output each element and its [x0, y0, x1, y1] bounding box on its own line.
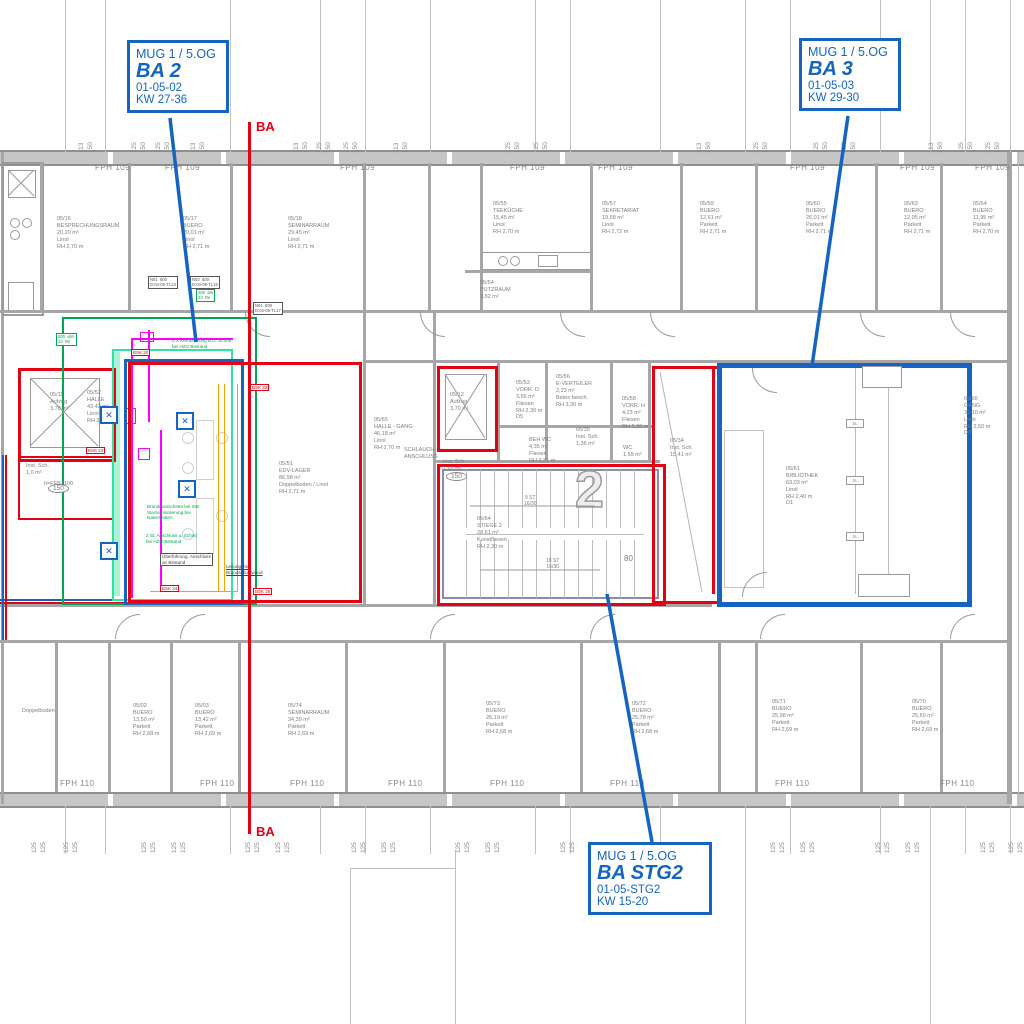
dim-number: 150 — [402, 142, 409, 153]
hob-symbol — [510, 256, 520, 266]
grid-line — [230, 0, 231, 152]
callout-ba3[interactable]: MUG 1 / 5.OG BA 3 01-05-03 KW 29-30 — [799, 38, 901, 111]
dim-number: 150 — [140, 142, 147, 153]
facade-label-top: FPH 109 — [975, 163, 1010, 172]
door-arc — [860, 312, 885, 337]
door-arc — [560, 312, 585, 337]
bsk-label: BSK 20 — [131, 349, 150, 356]
dim-number: 113 — [696, 143, 703, 153]
dim-number: 125 — [343, 142, 350, 153]
zone-stg2-red-outline — [437, 464, 666, 606]
room-label: 05/12 Aufzug 3,70 m² — [450, 392, 469, 413]
room-label: Inst. Sch. 1,0 m² — [26, 463, 49, 477]
door-arc — [430, 614, 455, 639]
grid-line — [745, 0, 746, 152]
wall — [718, 640, 721, 792]
room-label: 05/61 BIBLIOTHEK 63,03 m² Linol RH 2,40 … — [786, 466, 818, 507]
room-label: 05/18 SEMINARRAUM 29,45 m² Linol RH 2,71… — [288, 216, 329, 250]
dim-number: 150 — [164, 142, 171, 153]
door-arc — [950, 312, 975, 337]
note-green: Brandmanschette bei SW Steckenisolierung… — [147, 504, 199, 521]
room-label: BEH WC 4,35 m² Fliesen RH 2,31 m — [529, 437, 555, 465]
room-label: 05/63 BUERO 12,05 m² Parkett RH 2,71 m — [904, 201, 930, 235]
dim-number: 125 — [569, 842, 576, 853]
wall — [443, 640, 446, 792]
wall — [940, 163, 943, 312]
room-label: 05/02 BUERO 13,50 m² Parkett RH 2,68 m — [133, 703, 159, 737]
dim-number: 125 — [884, 842, 891, 853]
dim-number: 150 — [822, 142, 829, 153]
bsk-label: BSK 23 — [86, 447, 105, 454]
grid-line — [105, 806, 106, 854]
facade-label-bottom: FPH 110 — [200, 779, 234, 788]
left-edge-line-blue — [2, 455, 4, 640]
grid-line — [790, 806, 791, 854]
building-line — [930, 806, 931, 1024]
wall — [875, 163, 878, 312]
dim-number: 125 — [275, 842, 282, 853]
callout-ba2-code: 01-05-02 — [136, 82, 220, 94]
dim-number: 125 — [141, 842, 148, 853]
dim-number: 150 — [542, 142, 549, 153]
dim-number: 125 — [914, 842, 921, 853]
door-arc — [420, 312, 445, 337]
damper-icon: ✕ — [100, 406, 118, 424]
facade-label-top: FPH 109 — [95, 163, 130, 172]
dim-number: 150 — [87, 142, 94, 153]
building-line — [745, 806, 746, 1024]
damper-icon: ✕ — [100, 542, 118, 560]
room-label: 05/53 VORR. D 3,56 m² Fliesen RH 2,30 m … — [516, 380, 542, 421]
callout-ba3-project: MUG 1 / 5.OG — [808, 45, 892, 59]
dim-number: 125 — [813, 142, 820, 153]
dim-number: 125 — [809, 842, 816, 853]
wall — [580, 640, 583, 792]
callout-stg2-project: MUG 1 / 5.OG — [597, 849, 703, 863]
wall — [755, 163, 758, 312]
mini-table: 200 ø/m 23 Re — [56, 333, 77, 346]
facade-label-top: FPH 109 — [165, 163, 200, 172]
facade-label-bottom: FPH 110 — [940, 779, 974, 788]
fan-icon: ✕ — [178, 480, 196, 498]
dim-number: 125 — [31, 842, 38, 853]
dim-number: 125 — [779, 842, 786, 853]
dim-number: 113 — [293, 143, 300, 153]
room-label: 05/60 BUERO 26,01 m² Parkett RH 2,71 m — [806, 201, 832, 235]
wall — [40, 163, 43, 312]
building-line — [350, 868, 455, 869]
dim-number: 125 — [40, 842, 47, 853]
wall — [648, 362, 651, 460]
room-label: Doppelboden — [22, 708, 55, 715]
room-label: 05/03 BUERO 13,42 m² Parkett RH 2,69 m — [195, 703, 221, 737]
room-label: 05/56 E-VERTEILER 2,23 m² Beton besch. R… — [556, 374, 592, 408]
door-arc — [950, 614, 975, 639]
sink-symbol — [8, 282, 34, 312]
bsk-label: BSK 24 — [160, 585, 179, 592]
wall — [680, 163, 683, 312]
grid-line — [320, 806, 321, 854]
hob-symbol — [22, 218, 32, 228]
dim-number: 150 — [514, 142, 521, 153]
section-marker-top: BA — [256, 119, 275, 134]
wall — [428, 163, 431, 312]
facade-label-bottom: FPH 110 — [290, 779, 324, 788]
note-black: Überführung, Anschluss an Bestand — [160, 553, 213, 566]
room-label: 05/71 BUERO 25,98 m² Parkett RH 2,69 m — [772, 699, 798, 733]
grid-line — [65, 0, 66, 152]
dim-number: 125 — [390, 842, 397, 853]
dim-number: 150 — [325, 142, 332, 153]
fan-icon: ✕ — [176, 412, 194, 430]
facade-label-top: FPH 109 — [790, 163, 825, 172]
wall — [128, 163, 131, 312]
dim-number: 113 — [928, 143, 935, 153]
facade-label-top: FPH 109 — [598, 163, 633, 172]
grid-line — [1010, 0, 1011, 152]
wall — [610, 362, 613, 460]
grid-line — [320, 0, 321, 152]
dim-number: 125 — [841, 142, 848, 153]
dim-number: 125 — [905, 842, 912, 853]
room-label: 05/58 VORR. H 4,23 m² Fliesen RH 2,30 m — [622, 396, 648, 430]
callout-stg2-kw: KW 15-20 — [597, 896, 703, 908]
hob-symbol — [10, 218, 20, 228]
grid-line — [660, 0, 661, 152]
dim-number: 125 — [958, 142, 965, 153]
callout-ba2-kw: KW 27-36 — [136, 94, 220, 106]
dim-number: 125 — [72, 842, 79, 853]
dim-number: 125 — [485, 842, 492, 853]
room-label: Inst. Sch. 1,65 m² — [443, 459, 466, 473]
room-label: 05/57 SEKRETARIAT 19,58 m² Linol RH 2,72… — [602, 201, 639, 235]
callout-stg2[interactable]: MUG 1 / 5.OG BA STG2 01-05-STG2 KW 15-20 — [588, 842, 712, 915]
mini-table: 200 ø/s 23 Re — [196, 289, 215, 302]
dim-number: 125 — [180, 842, 187, 853]
room-label: 05/72 BUERO 25,78 m² Parkett RH 2,68 m — [632, 701, 658, 735]
room-label: 05/35 Inst. Sch. 1,36 m² — [576, 427, 599, 448]
dim-number: 113 — [78, 143, 85, 153]
outer-wall-right-2 — [1018, 152, 1019, 804]
dim-number: 125 — [533, 142, 540, 153]
wall — [465, 270, 590, 273]
dim-number: 125 — [1008, 842, 1015, 853]
dim-number: 150 — [302, 142, 309, 153]
note-black: Leitung vor Brandschutzwand — [226, 564, 263, 575]
facade-label-bottom: FPH 110 — [775, 779, 809, 788]
zone-ba3-red-edge — [712, 366, 715, 594]
dim-number: 125 — [254, 842, 261, 853]
dim-number: 113 — [190, 143, 197, 153]
door-arc — [760, 614, 785, 639]
dim-number: 150 — [994, 142, 1001, 153]
dim-number: 125 — [316, 142, 323, 153]
wall — [0, 310, 1008, 313]
facade-label-top: FPH 109 — [340, 163, 375, 172]
floorplan-canvas: BA BA 2 ✕ ✕ ✕ ✕ — [0, 0, 1024, 1024]
wall — [755, 640, 758, 792]
room-label: 05/74 SEMINARRAUM 34,39 m² Parkett RH 2,… — [288, 703, 329, 737]
wall — [363, 163, 366, 312]
dim-number: 150 — [967, 142, 974, 153]
dim-number: 125 — [171, 842, 178, 853]
grid-line — [535, 0, 536, 152]
building-line — [350, 868, 351, 1024]
dim-number: 150 — [937, 142, 944, 153]
wall — [238, 640, 241, 792]
mini-table: N02 600 D:04-05-TL15 — [190, 276, 220, 289]
facade-label-bottom: FPH 110 — [60, 779, 94, 788]
dim-number: 125 — [351, 842, 358, 853]
dim-number: 113 — [393, 143, 400, 153]
mini-table: N01 600 D:04-05-TL17 — [253, 302, 283, 315]
room-label: 05/17 BUERO 20,01 m² Linol RH 2,71 m — [183, 216, 209, 250]
dim-number: 150 — [762, 142, 769, 153]
zone-ba3-blue-outline — [717, 363, 972, 607]
note-green: 2 St. Anschluss u. Schott bei HZG Bestan… — [146, 533, 197, 544]
sink-symbol — [538, 255, 558, 267]
library-bottom-box — [858, 574, 910, 597]
room-label: 05/16 BESPRECHUNGSRAUM 20,20 m² Linol RH… — [57, 216, 119, 250]
dim-number: 125 — [381, 842, 388, 853]
callout-stg2-code: 01-05-STG2 — [597, 884, 703, 896]
dim-number: 125 — [464, 842, 471, 853]
bsk-label: BSK 22 — [250, 384, 269, 391]
facade-label-bottom: FPH 110 — [388, 779, 422, 788]
room-label: 05/66 GANG 39,10 m² Linol RH 2,50 m D3 — [964, 396, 990, 437]
wall — [0, 640, 1008, 643]
dim-number: 125 — [985, 142, 992, 153]
room-label: 05/73 BUERO 26,19 m² Parkett RH 2,68 m — [486, 701, 512, 735]
grid-line — [430, 0, 431, 152]
room-label: 05/34 Inst. Sch. 15,41 m² — [670, 438, 693, 459]
grid-line — [430, 806, 431, 854]
room-label: 05/64 STIEGE 2 28,61 m² Kunstfliesen RH … — [477, 516, 507, 550]
dim-number: 125 — [63, 842, 70, 853]
room-label: 05/54 PUTZRAUM 3,82 m² — [480, 280, 511, 301]
misc-label: h=FFB+100 — [44, 481, 73, 488]
dim-number: 125 — [989, 842, 996, 853]
room-label: 05/51 EDV-LAGER 86,98 m² Doppelboden / L… — [279, 461, 328, 495]
door-arc — [180, 614, 205, 639]
bsk-label: BSK 26 — [253, 588, 272, 595]
room-label: 05/59 BUERO 12,61 m² Parkett RH 2,71 m — [700, 201, 726, 235]
grid-line — [965, 806, 966, 854]
callout-ba2-name: BA 2 — [136, 61, 220, 82]
dim-number: 125 — [800, 842, 807, 853]
callout-ba3-code: 01-05-03 — [808, 80, 892, 92]
wall — [940, 640, 943, 792]
shaft-mid-outline — [652, 366, 721, 604]
dim-number: 125 — [875, 842, 882, 853]
dim-number: 150 — [705, 142, 712, 153]
dim-number: 125 — [360, 842, 367, 853]
section-marker-bottom: BA — [256, 824, 275, 839]
facade-band-bottom — [0, 792, 1024, 808]
facade-label-top: FPH 109 — [510, 163, 545, 172]
kitchen-box — [8, 170, 36, 198]
dim-number: 125 — [245, 842, 252, 853]
wall — [363, 310, 366, 604]
grid-line — [535, 806, 536, 854]
facade-label-bottom: FPH 110 — [490, 779, 524, 788]
room-label: 05/55 TEEKÜCHE 15,45 m² Linol RH 2,70 m — [493, 201, 523, 235]
room-label: 05/64 BUERO 11,95 m² Parkett RH 2,70 m — [973, 201, 999, 235]
callout-stg2-name: BA STG2 — [597, 863, 703, 884]
facade-label-bottom: FPH 110 — [610, 779, 644, 788]
callout-ba3-name: BA 3 — [808, 59, 892, 80]
grid-line — [570, 0, 571, 152]
dim-number: 125 — [494, 842, 501, 853]
wall — [170, 640, 173, 792]
outer-wall-right — [1007, 152, 1012, 804]
room-label: WC 1,59 m² — [623, 445, 642, 459]
hob-symbol — [10, 230, 20, 240]
dim-number: 125 — [1017, 842, 1024, 853]
dim-oval: 150 — [446, 472, 467, 481]
dim-number: 125 — [770, 842, 777, 853]
door-arc — [115, 614, 140, 639]
hob-symbol — [498, 256, 508, 266]
grid-line — [105, 0, 106, 152]
dim-number: 125 — [753, 142, 760, 153]
note-green: 2 X Kernbohrung ø.G. Schott bei HZG Best… — [172, 338, 231, 349]
dim-number: 125 — [980, 842, 987, 853]
dim-number: 150 — [850, 142, 857, 153]
dim-number: 150 — [352, 142, 359, 153]
dim-number: 125 — [505, 142, 512, 153]
grid-line — [930, 0, 931, 152]
facade-label-top: FPH 109 — [900, 163, 935, 172]
dim-number: 125 — [560, 842, 567, 853]
door-arc — [590, 614, 615, 639]
dim-number: 125 — [150, 842, 157, 853]
door-arc — [650, 312, 675, 337]
section-line-ba — [248, 122, 251, 834]
room-label: 05/70 BUERO 25,69 m² Parkett RH 2,69 m — [912, 699, 938, 733]
dim-number: 125 — [284, 842, 291, 853]
grid-line — [230, 806, 231, 854]
mini-table: N01 600 D:04-05-TL13 — [148, 276, 178, 289]
building-line — [455, 850, 456, 1024]
grid-line — [365, 0, 366, 152]
room-label: 05/11 Aufzug 3,78 m² — [50, 392, 69, 413]
grid-line — [790, 0, 791, 152]
wall — [108, 640, 111, 792]
misc-label: SCHLAUCH- ANSCHLUSS — [404, 447, 438, 461]
callout-ba2[interactable]: MUG 1 / 5.OG BA 2 01-05-02 KW 27-36 — [127, 40, 229, 113]
dim-number: 150 — [199, 142, 206, 153]
dim-number: 125 — [455, 842, 462, 853]
wall — [55, 640, 58, 792]
grid-line — [965, 0, 966, 152]
library-top-box — [862, 366, 902, 388]
dim-number: 125 — [131, 142, 138, 153]
wall — [590, 163, 593, 312]
left-edge-line-red — [5, 455, 7, 640]
wall — [860, 640, 863, 792]
callout-ba3-kw: KW 29-30 — [808, 92, 892, 104]
wall — [345, 640, 348, 792]
dim-number: 125 — [155, 142, 162, 153]
wall — [230, 163, 233, 312]
callout-ba2-project: MUG 1 / 5.OG — [136, 47, 220, 61]
